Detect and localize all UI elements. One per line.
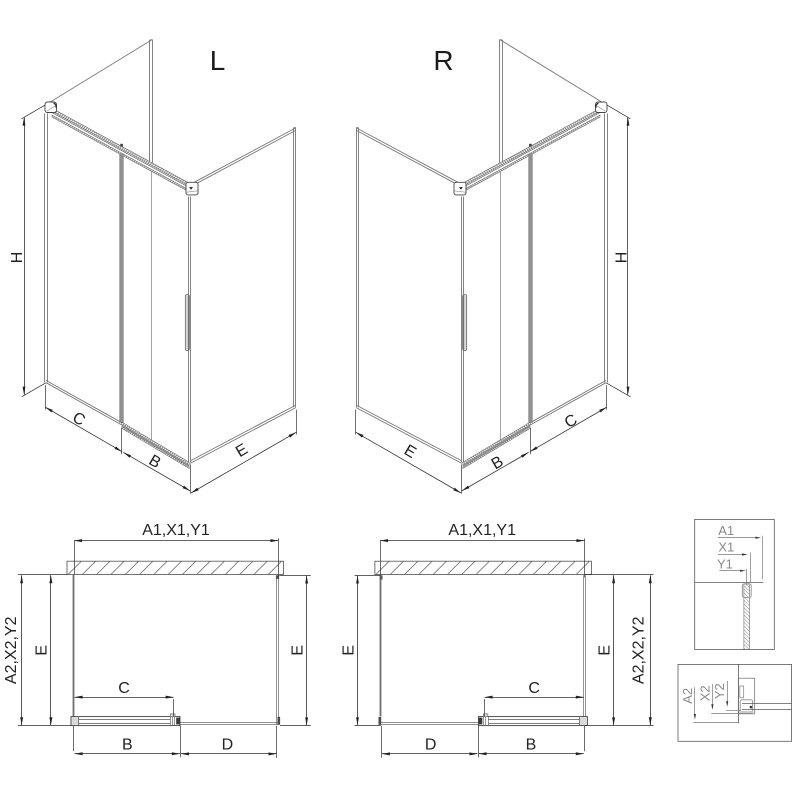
svg-text:X1: X1 bbox=[718, 540, 734, 555]
svg-text:E: E bbox=[341, 645, 358, 656]
svg-text:A2: A2 bbox=[680, 688, 695, 704]
svg-text:Y2: Y2 bbox=[712, 683, 727, 699]
svg-text:L: L bbox=[210, 45, 226, 76]
svg-text:Y1: Y1 bbox=[717, 557, 733, 572]
svg-text:H: H bbox=[9, 252, 26, 264]
svg-text:H: H bbox=[614, 252, 631, 264]
svg-text:B: B bbox=[526, 736, 537, 753]
svg-text:D: D bbox=[222, 737, 234, 754]
svg-text:B: B bbox=[489, 453, 507, 473]
svg-text:X2: X2 bbox=[698, 685, 713, 701]
svg-text:C: C bbox=[528, 680, 540, 697]
svg-text:A1,X1,Y1: A1,X1,Y1 bbox=[448, 522, 516, 539]
svg-text:E: E bbox=[290, 645, 307, 656]
svg-text:E: E bbox=[233, 441, 251, 461]
svg-text:A1: A1 bbox=[718, 523, 734, 538]
svg-text:A2,X2,Y2: A2,X2,Y2 bbox=[631, 616, 648, 684]
svg-text:A1,X1,Y1: A1,X1,Y1 bbox=[142, 522, 210, 539]
svg-text:C: C bbox=[69, 409, 88, 430]
svg-text:A2,X2,Y2: A2,X2,Y2 bbox=[3, 616, 20, 684]
svg-text:B: B bbox=[146, 452, 164, 472]
svg-text:C: C bbox=[118, 680, 130, 697]
svg-text:R: R bbox=[433, 45, 453, 76]
svg-text:E: E bbox=[33, 645, 50, 656]
svg-text:B: B bbox=[122, 736, 133, 753]
svg-text:C: C bbox=[562, 411, 581, 432]
svg-text:E: E bbox=[597, 645, 614, 656]
svg-text:E: E bbox=[401, 442, 419, 462]
svg-text:D: D bbox=[425, 737, 437, 754]
